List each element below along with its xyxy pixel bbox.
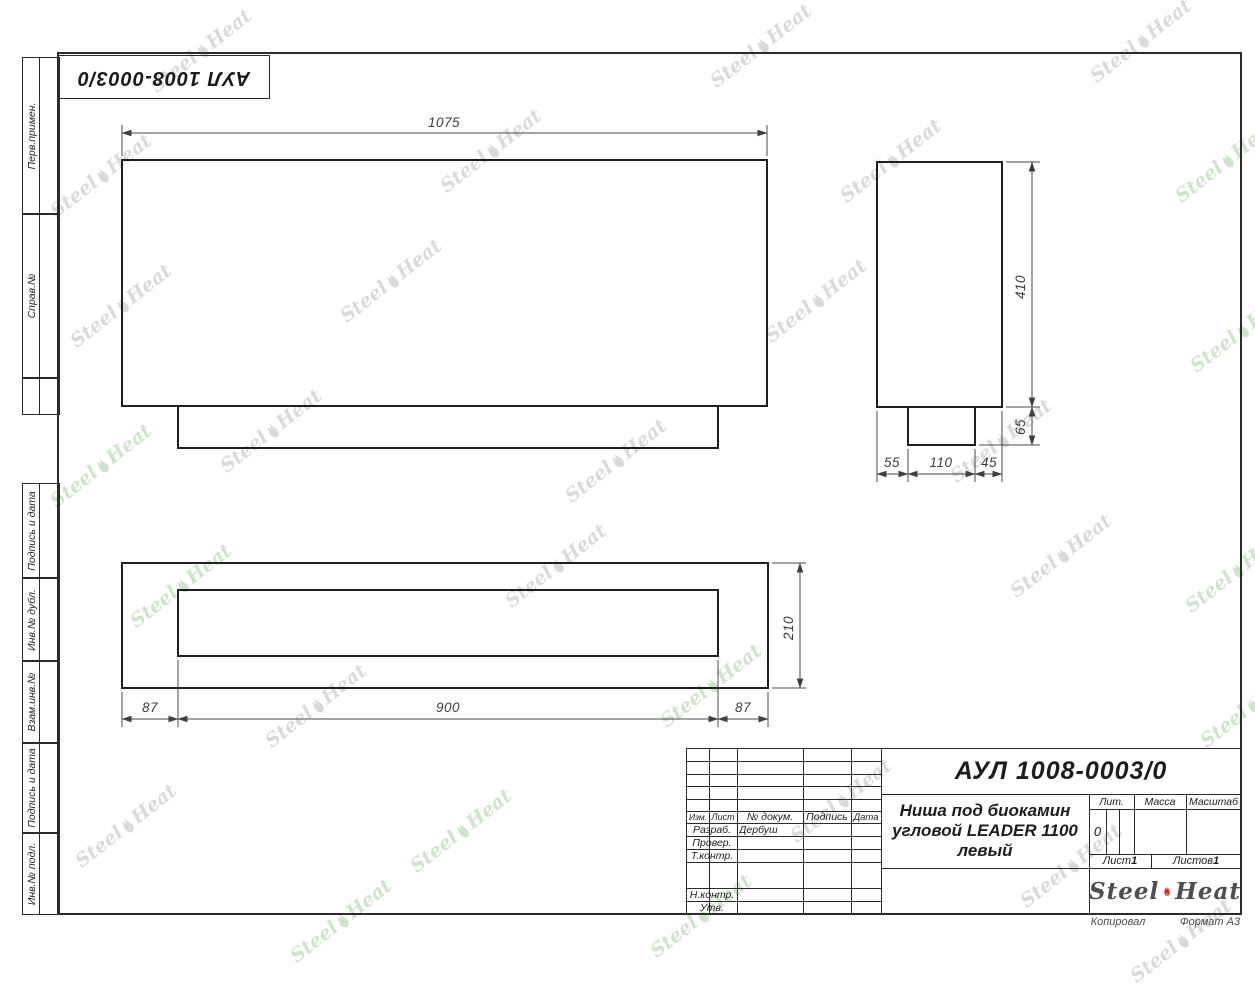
row-nkontr: Н.контр. [687, 888, 737, 901]
dim-text-55: 55 [884, 455, 900, 470]
title-block: Изм. Лист № докум. Подпись Дата Разраб. … [686, 748, 1242, 915]
flame-icon [1163, 874, 1171, 908]
masshtab-label: Масштаб [1186, 794, 1241, 809]
list-cell: Лист 1 [1089, 854, 1151, 868]
dim-text-65: 65 [1013, 419, 1028, 435]
dim-plan-height: 210 [772, 563, 806, 688]
col-podpis: Подпись [803, 811, 851, 823]
dim-side-height: 410 65 [979, 162, 1040, 445]
dim-text-45: 45 [981, 455, 997, 470]
side-view-outline [877, 162, 1002, 407]
drawing-sheet: { "stamp": { "number": "АУЛ 1008-0003/0"… [0, 0, 1255, 970]
logo-steel-text: Steel [1089, 878, 1159, 905]
dim-text-1075: 1075 [428, 115, 460, 130]
lit-value: 0 [1089, 809, 1106, 854]
dim-text-87-right: 87 [735, 700, 751, 715]
part-name: Ниша под биокамин угловой LEADER 1100 ле… [881, 794, 1089, 868]
col-data: Дата [851, 811, 881, 823]
plan-view-opening [178, 590, 718, 656]
part-name-line2: угловой LEADER 1100 [892, 821, 1078, 841]
col-izm: Изм. [687, 811, 709, 823]
part-name-line1: Ниша под биокамин [900, 801, 1071, 821]
doc-number: АУЛ 1008-0003/0 [881, 749, 1241, 794]
dim-plan-bottom-chain: 87 900 87 [122, 660, 768, 727]
format-note: Формат А3 [1165, 915, 1255, 928]
part-name-line3: левый [958, 841, 1013, 861]
side-view-base [908, 407, 975, 445]
dim-text-410: 410 [1013, 275, 1028, 299]
row-prover: Провер. [687, 836, 737, 849]
front-view-outline [122, 160, 767, 406]
logo-heat-text: Heat [1175, 878, 1241, 905]
front-view-base [178, 406, 718, 448]
massa-label: Масса [1134, 794, 1186, 809]
steelheat-logo: Steel Heat [1089, 868, 1241, 914]
dim-side-bottom-chain: 55 110 45 [877, 411, 1002, 482]
col-list: Лист [709, 811, 737, 823]
row-tkontr: Т.контр. [687, 849, 737, 862]
kopiroval-note: Копировал [1072, 915, 1164, 928]
dim-front-width: 1075 [122, 115, 767, 156]
col-dokum: № докум. [737, 811, 803, 823]
dim-text-87-left: 87 [142, 700, 158, 715]
dim-text-900: 900 [436, 700, 460, 715]
listov-cell: Листов 1 [1151, 854, 1241, 868]
plan-view-outline [122, 563, 768, 688]
lit-label: Лит. [1089, 794, 1134, 809]
dim-text-210: 210 [781, 616, 796, 641]
row-utv: Утв. [687, 901, 737, 914]
dim-text-110: 110 [929, 455, 952, 470]
row-razrab: Разраб. [687, 823, 737, 836]
razrab-name: Дербуш [739, 823, 803, 836]
